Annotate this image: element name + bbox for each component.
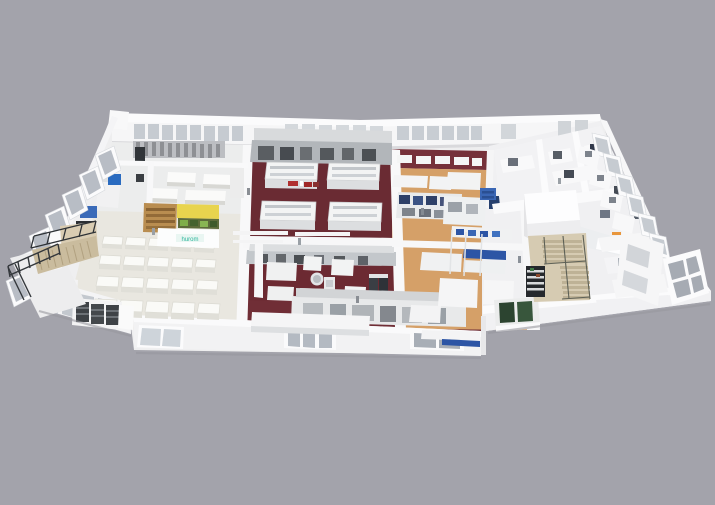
svg-text:hurom: hurom	[181, 237, 198, 243]
